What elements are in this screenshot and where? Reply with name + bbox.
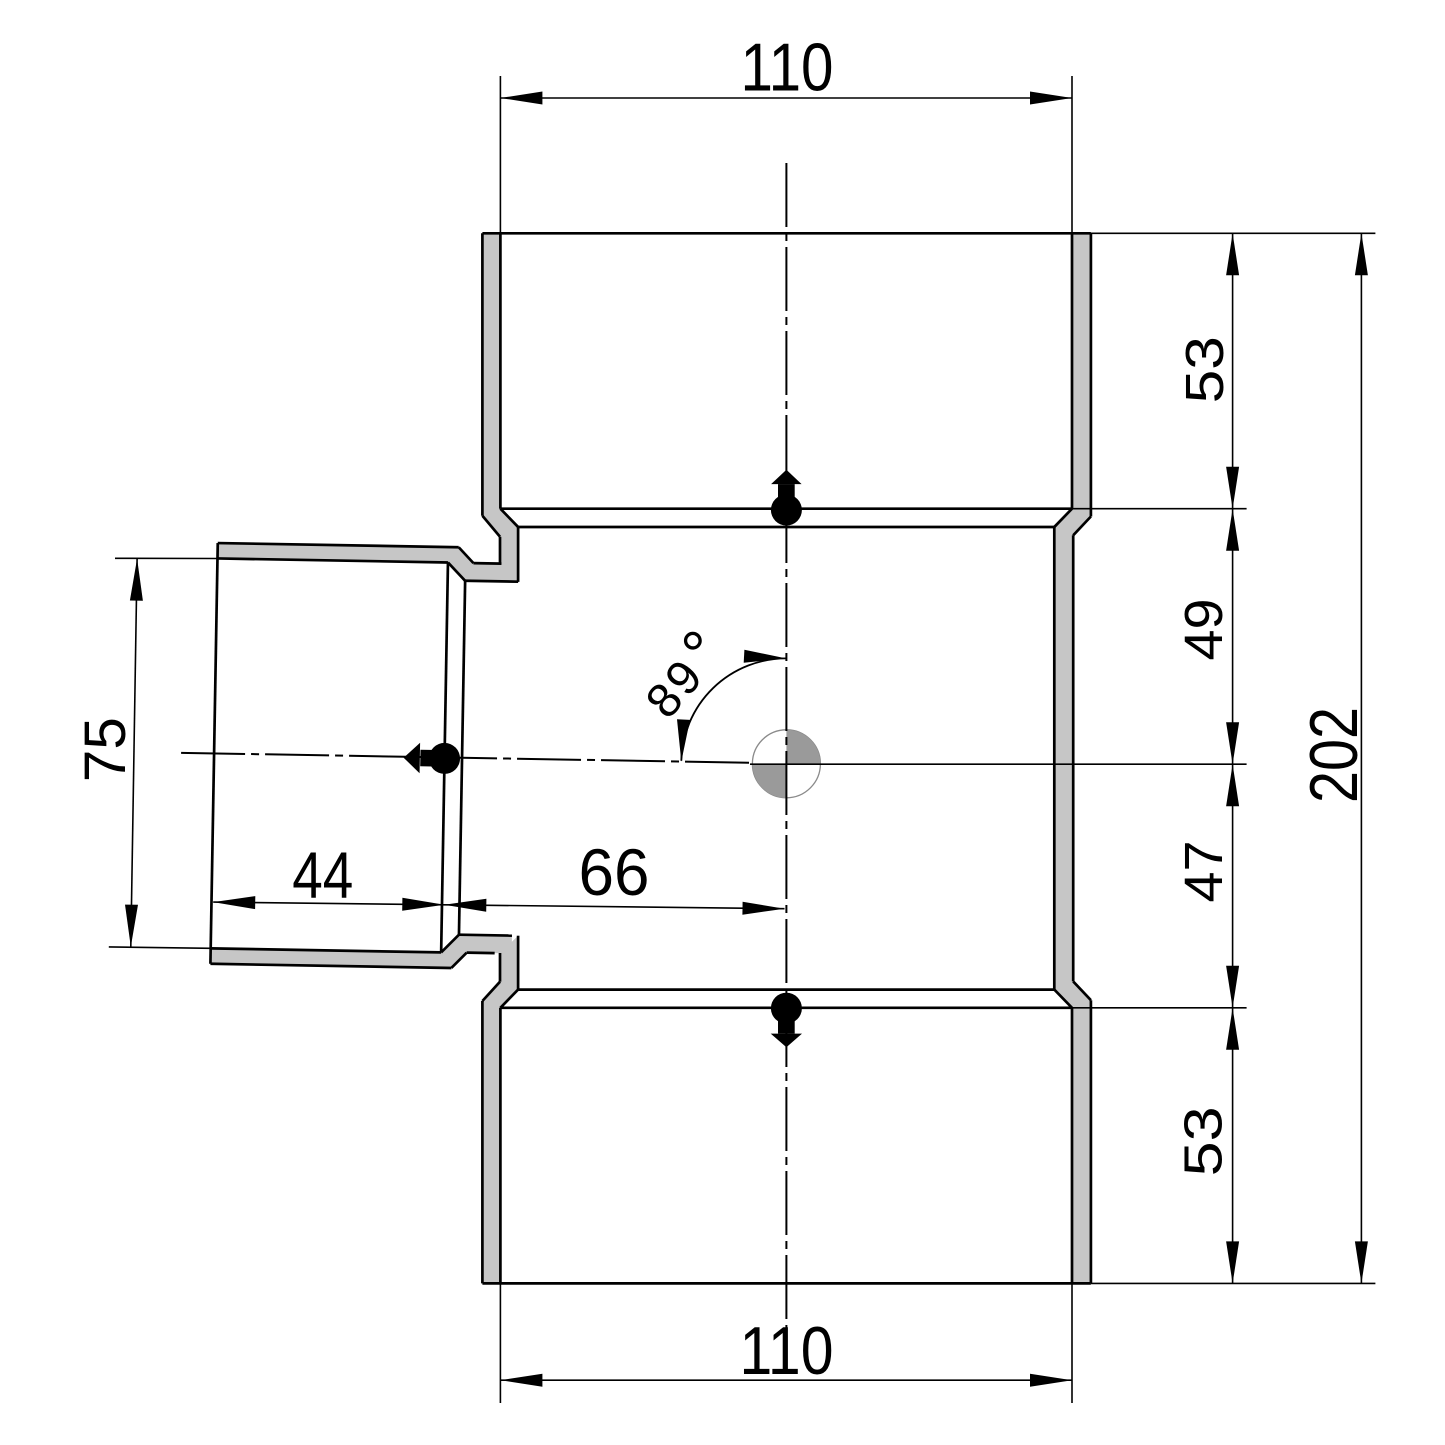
svg-text:49: 49 bbox=[1174, 599, 1234, 661]
svg-text:53: 53 bbox=[1175, 336, 1235, 403]
svg-text:53: 53 bbox=[1174, 1106, 1234, 1176]
svg-text:66: 66 bbox=[579, 835, 650, 909]
svg-text:47: 47 bbox=[1174, 841, 1234, 903]
svg-text:110: 110 bbox=[741, 30, 834, 106]
svg-text:110: 110 bbox=[740, 1313, 834, 1389]
svg-text:202: 202 bbox=[1296, 707, 1372, 803]
svg-text:75: 75 bbox=[73, 717, 138, 782]
svg-text:44: 44 bbox=[292, 838, 353, 912]
